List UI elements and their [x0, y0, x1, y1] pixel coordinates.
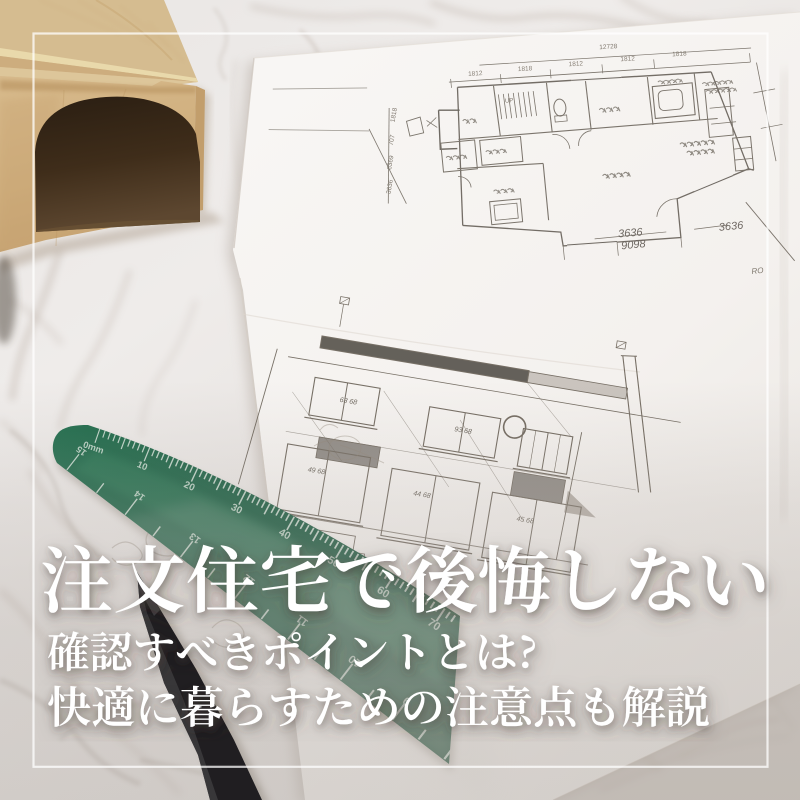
svg-text:1812: 1812: [568, 60, 583, 68]
svg-text:9098: 9098: [621, 238, 647, 252]
svg-text:1818: 1818: [518, 65, 533, 73]
svg-text:UP: UP: [505, 98, 514, 105]
svg-text:RO: RO: [751, 266, 764, 276]
svg-text:1812: 1812: [468, 70, 483, 78]
svg-text:1812: 1812: [620, 55, 635, 63]
svg-text:3636: 3636: [718, 219, 744, 233]
svg-text:1818: 1818: [672, 50, 687, 58]
svg-text:12728: 12728: [599, 43, 618, 51]
